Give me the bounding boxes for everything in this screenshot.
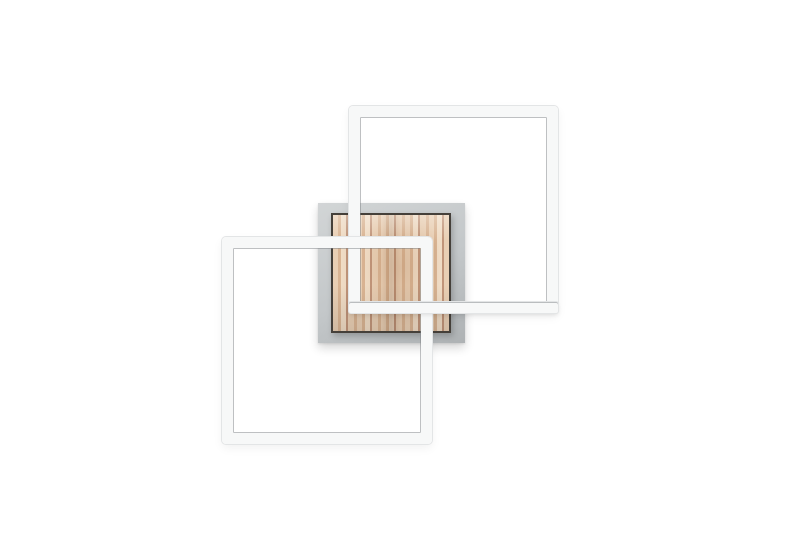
frame-upper-bottom-bar <box>349 302 558 313</box>
frame-lower <box>222 237 432 444</box>
product-photo-canvas <box>0 0 800 533</box>
